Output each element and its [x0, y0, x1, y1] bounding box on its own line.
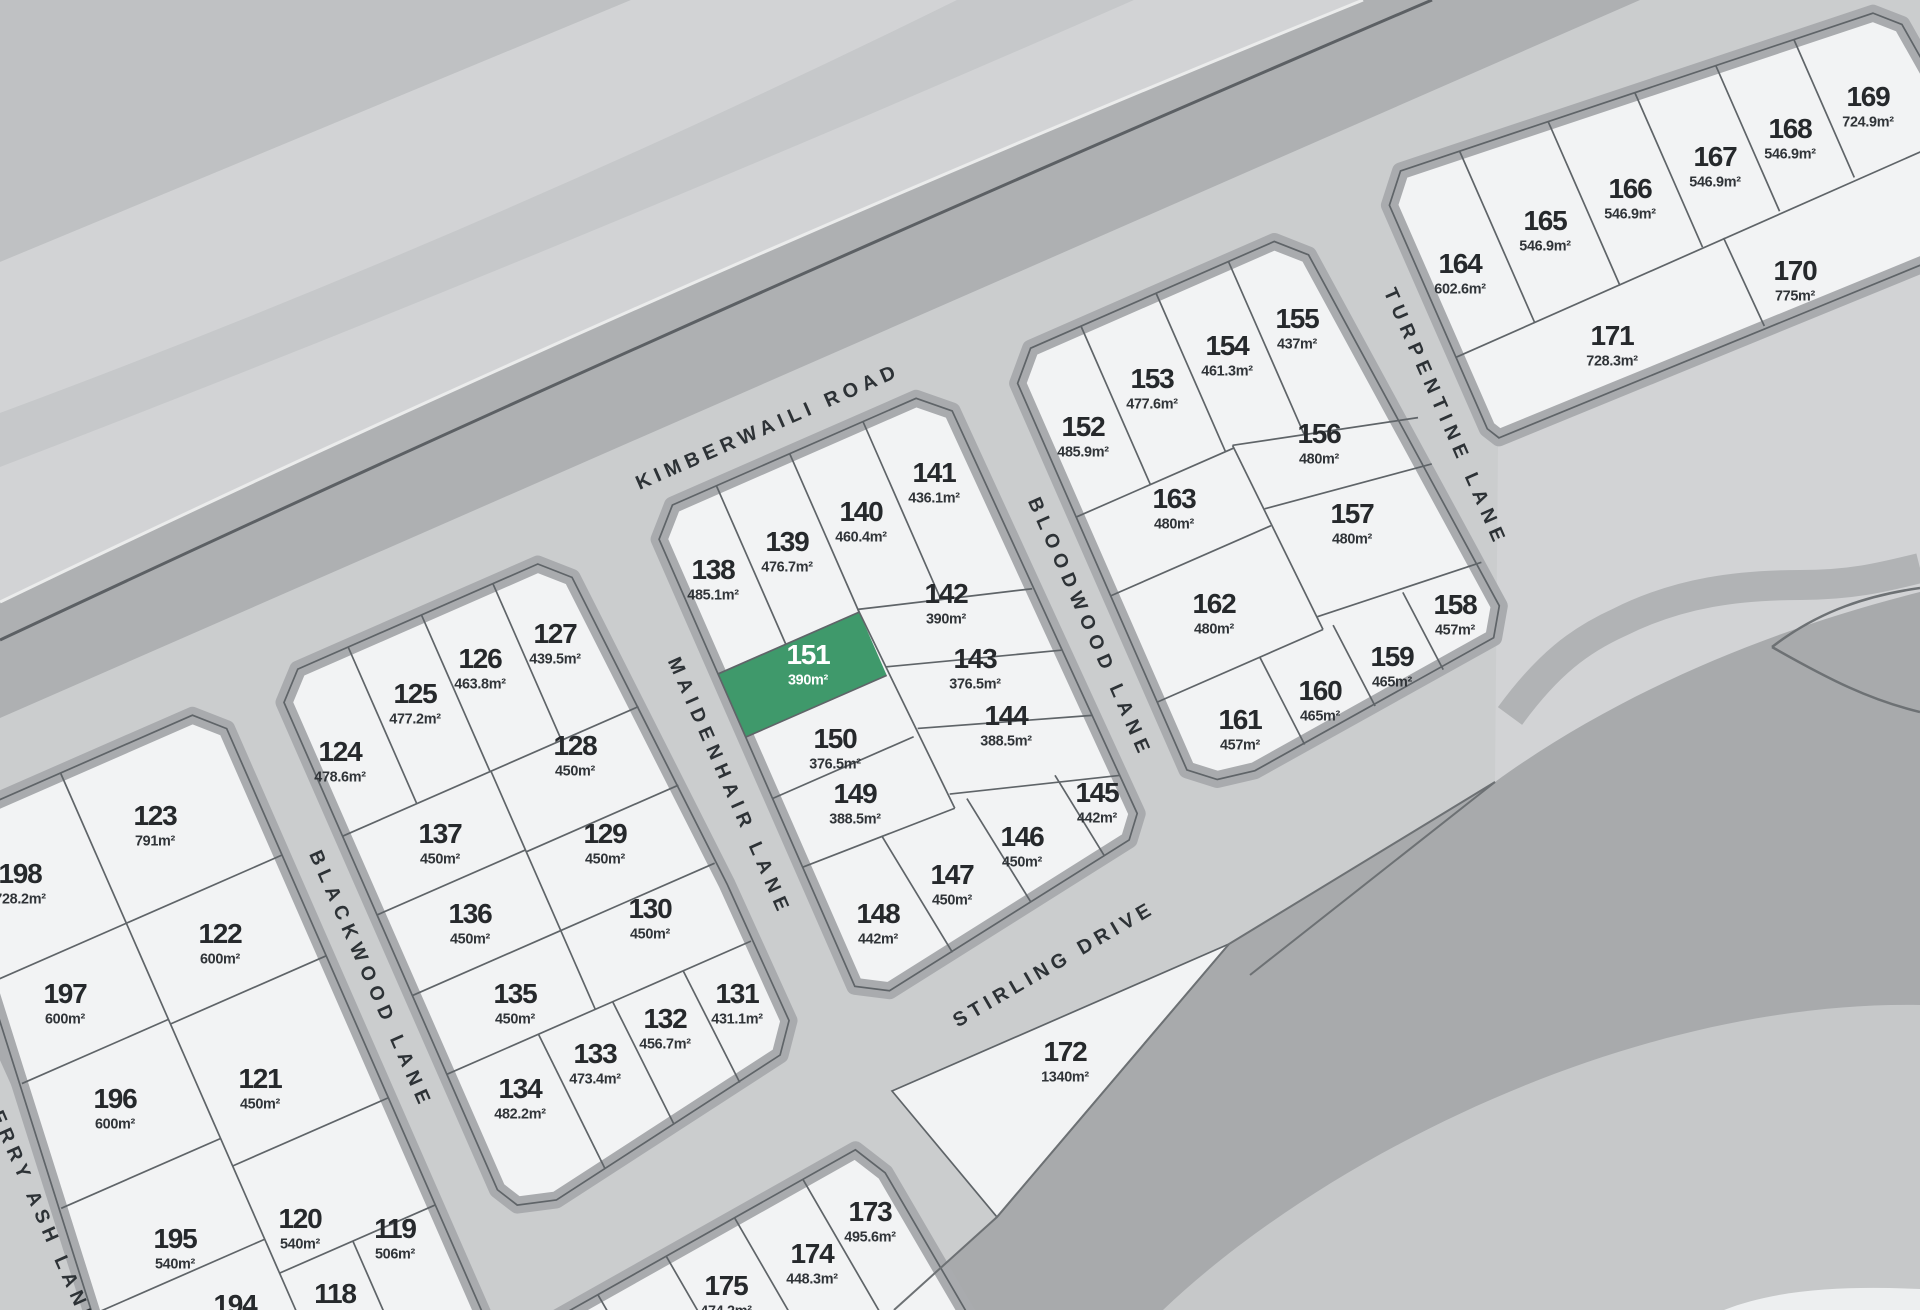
svg-text:390m²: 390m² [926, 612, 967, 628]
svg-text:155: 155 [1275, 303, 1319, 334]
svg-text:137: 137 [418, 818, 462, 849]
svg-text:791m²: 791m² [135, 834, 176, 850]
svg-text:149: 149 [833, 778, 877, 809]
svg-text:376.5m²: 376.5m² [809, 757, 861, 773]
svg-text:388.5m²: 388.5m² [829, 812, 881, 828]
svg-text:540m²: 540m² [155, 1257, 196, 1273]
svg-text:450m²: 450m² [630, 927, 671, 943]
svg-text:162: 162 [1192, 588, 1236, 619]
svg-text:480m²: 480m² [1299, 452, 1340, 468]
svg-text:478.6m²: 478.6m² [314, 770, 366, 786]
svg-text:437m²: 437m² [1277, 337, 1318, 353]
svg-text:465m²: 465m² [1372, 675, 1413, 691]
svg-text:146: 146 [1000, 821, 1044, 852]
svg-text:135: 135 [493, 978, 537, 1009]
svg-text:173: 173 [848, 1196, 892, 1227]
svg-text:461.3m²: 461.3m² [1201, 364, 1253, 380]
svg-text:164: 164 [1438, 248, 1483, 279]
svg-text:457m²: 457m² [1220, 738, 1261, 754]
svg-text:168: 168 [1768, 113, 1812, 144]
svg-text:123: 123 [133, 800, 177, 831]
svg-text:460.4m²: 460.4m² [835, 530, 887, 546]
svg-text:390m²: 390m² [788, 673, 829, 689]
svg-text:376.5m²: 376.5m² [949, 677, 1001, 693]
svg-text:152: 152 [1061, 411, 1105, 442]
svg-text:1340m²: 1340m² [1041, 1070, 1089, 1086]
svg-text:388.5m²: 388.5m² [980, 734, 1032, 750]
svg-text:167: 167 [1693, 141, 1737, 172]
svg-text:118: 118 [314, 1278, 356, 1309]
svg-text:450m²: 450m² [420, 852, 461, 868]
svg-text:150: 150 [813, 723, 857, 754]
svg-text:442m²: 442m² [1077, 811, 1118, 827]
svg-text:476.7m²: 476.7m² [761, 560, 813, 576]
svg-text:125: 125 [393, 678, 437, 709]
svg-text:431.1m²: 431.1m² [711, 1012, 763, 1028]
svg-text:131: 131 [715, 978, 759, 1009]
svg-text:122: 122 [198, 918, 242, 949]
svg-text:171: 171 [1590, 320, 1634, 351]
svg-text:457m²: 457m² [1435, 623, 1476, 639]
svg-text:175: 175 [704, 1270, 748, 1301]
svg-text:546.9m²: 546.9m² [1519, 239, 1571, 255]
svg-text:147: 147 [930, 859, 974, 890]
svg-text:130: 130 [628, 893, 672, 924]
svg-text:144: 144 [984, 700, 1029, 731]
svg-text:456.7m²: 456.7m² [639, 1037, 691, 1053]
svg-text:133: 133 [573, 1038, 617, 1069]
svg-text:480m²: 480m² [1332, 532, 1373, 548]
svg-text:140: 140 [839, 496, 883, 527]
svg-text:172: 172 [1043, 1036, 1087, 1067]
svg-text:474.2m²: 474.2m² [700, 1304, 752, 1310]
svg-text:600m²: 600m² [45, 1012, 86, 1028]
svg-text:148: 148 [856, 898, 900, 929]
svg-text:506m²: 506m² [375, 1247, 416, 1263]
svg-text:129: 129 [583, 818, 627, 849]
svg-text:465m²: 465m² [1300, 709, 1341, 725]
svg-text:132: 132 [643, 1003, 687, 1034]
svg-text:134: 134 [498, 1073, 543, 1104]
svg-text:120: 120 [278, 1203, 322, 1234]
svg-text:450m²: 450m² [585, 852, 626, 868]
svg-text:439.5m²: 439.5m² [529, 652, 581, 668]
svg-text:163: 163 [1152, 483, 1196, 514]
svg-text:450m²: 450m² [555, 764, 596, 780]
svg-text:197: 197 [43, 978, 87, 1009]
svg-text:450m²: 450m² [495, 1012, 536, 1028]
svg-text:196: 196 [93, 1083, 137, 1114]
svg-text:495.6m²: 495.6m² [844, 1230, 896, 1246]
svg-text:151: 151 [786, 639, 830, 670]
svg-text:156: 156 [1297, 418, 1341, 449]
svg-text:160: 160 [1298, 675, 1342, 706]
svg-text:154: 154 [1205, 330, 1250, 361]
svg-text:450m²: 450m² [1002, 855, 1043, 871]
svg-text:540m²: 540m² [280, 1237, 321, 1253]
svg-text:485.9m²: 485.9m² [1057, 445, 1109, 461]
svg-text:450m²: 450m² [450, 932, 491, 948]
svg-text:159: 159 [1370, 641, 1414, 672]
svg-text:139: 139 [765, 526, 809, 557]
svg-text:141: 141 [912, 457, 956, 488]
svg-text:174: 174 [790, 1238, 835, 1269]
svg-text:198: 198 [0, 858, 42, 889]
svg-text:127: 127 [533, 618, 577, 649]
svg-text:138: 138 [691, 554, 735, 585]
svg-text:128: 128 [553, 730, 597, 761]
svg-text:143: 143 [953, 643, 997, 674]
svg-text:169: 169 [1846, 81, 1890, 112]
svg-text:119: 119 [374, 1213, 416, 1244]
svg-text:153: 153 [1130, 363, 1174, 394]
svg-text:724.9m²: 724.9m² [1842, 115, 1894, 131]
svg-text:600m²: 600m² [200, 952, 241, 968]
svg-text:728.2m²: 728.2m² [0, 892, 46, 908]
svg-text:145: 145 [1075, 777, 1119, 808]
svg-text:546.9m²: 546.9m² [1764, 147, 1816, 163]
svg-text:142: 142 [924, 578, 968, 609]
svg-text:480m²: 480m² [1194, 622, 1235, 638]
svg-text:124: 124 [318, 736, 363, 767]
svg-text:165: 165 [1523, 205, 1567, 236]
svg-text:473.4m²: 473.4m² [569, 1072, 621, 1088]
svg-text:166: 166 [1608, 173, 1652, 204]
svg-text:442m²: 442m² [858, 932, 899, 948]
svg-text:602.6m²: 602.6m² [1434, 282, 1486, 298]
svg-text:600m²: 600m² [95, 1117, 136, 1133]
svg-text:170: 170 [1773, 255, 1817, 286]
svg-text:195: 195 [153, 1223, 197, 1254]
svg-text:194: 194 [213, 1289, 258, 1310]
svg-text:480m²: 480m² [1154, 517, 1195, 533]
svg-text:546.9m²: 546.9m² [1689, 175, 1741, 191]
svg-text:728.3m²: 728.3m² [1586, 354, 1638, 370]
svg-text:158: 158 [1433, 589, 1477, 620]
svg-text:775m²: 775m² [1775, 289, 1816, 305]
svg-text:436.1m²: 436.1m² [908, 491, 960, 507]
svg-text:136: 136 [448, 898, 492, 929]
svg-text:450m²: 450m² [240, 1097, 281, 1113]
svg-text:157: 157 [1330, 498, 1374, 529]
svg-text:121: 121 [238, 1063, 282, 1094]
svg-text:477.2m²: 477.2m² [389, 712, 441, 728]
svg-text:161: 161 [1218, 704, 1262, 735]
svg-text:126: 126 [458, 643, 502, 674]
svg-text:477.6m²: 477.6m² [1126, 397, 1178, 413]
svg-text:448.3m²: 448.3m² [786, 1272, 838, 1288]
svg-text:485.1m²: 485.1m² [687, 588, 739, 604]
svg-text:546.9m²: 546.9m² [1604, 207, 1656, 223]
svg-text:482.2m²: 482.2m² [494, 1107, 546, 1123]
svg-text:450m²: 450m² [932, 893, 973, 909]
svg-text:463.8m²: 463.8m² [454, 677, 506, 693]
